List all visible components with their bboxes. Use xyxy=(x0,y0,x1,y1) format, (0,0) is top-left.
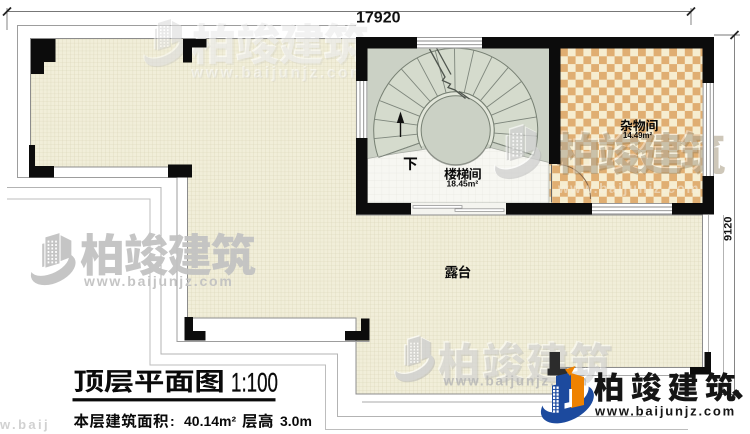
svg-text:17920: 17920 xyxy=(356,10,401,27)
svg-text:www.baijunjz.com: www.baijunjz.com xyxy=(557,181,700,196)
svg-text:14.49m²: 14.49m² xyxy=(623,131,652,140)
svg-text:www.baijunjz.com: www.baijunjz.com xyxy=(191,66,367,83)
svg-text:www.baij: www.baij xyxy=(0,417,50,432)
svg-text::: : xyxy=(269,413,274,429)
svg-text:www.baijunjz.com: www.baijunjz.com xyxy=(594,404,736,419)
svg-text:40.14m²: 40.14m² xyxy=(184,413,236,429)
svg-text:www.baijunjz.com: www.baijunjz.com xyxy=(83,273,234,289)
svg-text:18.45m²: 18.45m² xyxy=(447,179,479,189)
svg-text:1:100: 1:100 xyxy=(231,368,278,398)
svg-text:9120: 9120 xyxy=(723,217,735,241)
svg-text::: : xyxy=(170,413,175,429)
svg-text:3.0m: 3.0m xyxy=(280,413,312,429)
